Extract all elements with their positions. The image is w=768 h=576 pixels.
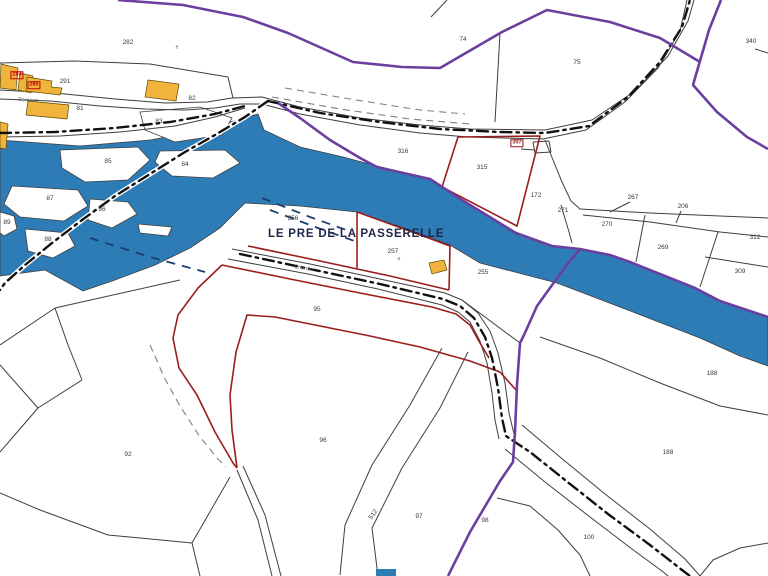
parcel-label: 92 [124, 452, 131, 459]
parcel-label: 255 [478, 270, 489, 277]
parcel-label: 75 [573, 60, 580, 67]
parcel-label: 206 [678, 204, 689, 211]
parcel-label: 312 [750, 235, 761, 242]
map-geometry [0, 0, 768, 576]
locality-title: LE PRE DE LA PASSERELLE [268, 228, 444, 240]
parcel-label: 282 [123, 40, 134, 47]
parcel-label: 271 [558, 208, 569, 215]
parcel-label: 82 [188, 96, 195, 103]
parcel-label: 84 [181, 162, 188, 169]
parcel-label: 172 [531, 193, 542, 200]
section-mark: e [398, 258, 401, 263]
parcel-label: 87 [46, 196, 53, 203]
parcel-label: 83 [155, 119, 162, 126]
parcel-label: 98 [481, 518, 488, 525]
parcel-label: 85 [104, 159, 111, 166]
parcel-label: 188 [707, 371, 718, 378]
parcel-label: 97 [415, 514, 422, 521]
parcel-label: 291 [60, 79, 71, 86]
parcel-label: 270 [602, 222, 613, 229]
parcel-label: 257 [388, 249, 399, 256]
parcel-label: 88 [44, 237, 51, 244]
bottom-blue-mark [376, 569, 396, 576]
parcel-label: 315 [477, 165, 488, 172]
parcel-label: 267 [628, 195, 639, 202]
boxed-parcel-label: 285 [27, 81, 40, 89]
parcel-label: 256 [288, 216, 299, 223]
parcel-label: 188 [663, 450, 674, 457]
parcel-label: 316 [398, 149, 409, 156]
parcel-label: 309 [735, 269, 746, 276]
parcel-label: 95 [313, 307, 320, 314]
parcel-label: 81 [76, 106, 83, 113]
parcel-label: 86 [98, 207, 105, 214]
parcel-label: 100 [584, 535, 595, 542]
parcel-label: 340 [746, 39, 757, 46]
boxed-parcel-label: 307 [510, 139, 523, 147]
parcel-label: 89 [3, 220, 10, 227]
parcel-label: 74 [459, 37, 466, 44]
boxed-parcel-label: 283 [10, 71, 23, 79]
section-mark: e [176, 46, 179, 51]
parcel-label: 96 [319, 438, 326, 445]
parcel-label: 269 [658, 245, 669, 252]
cadastral-map[interactable]: 2827475340291818283858487868889316315172… [0, 0, 768, 576]
